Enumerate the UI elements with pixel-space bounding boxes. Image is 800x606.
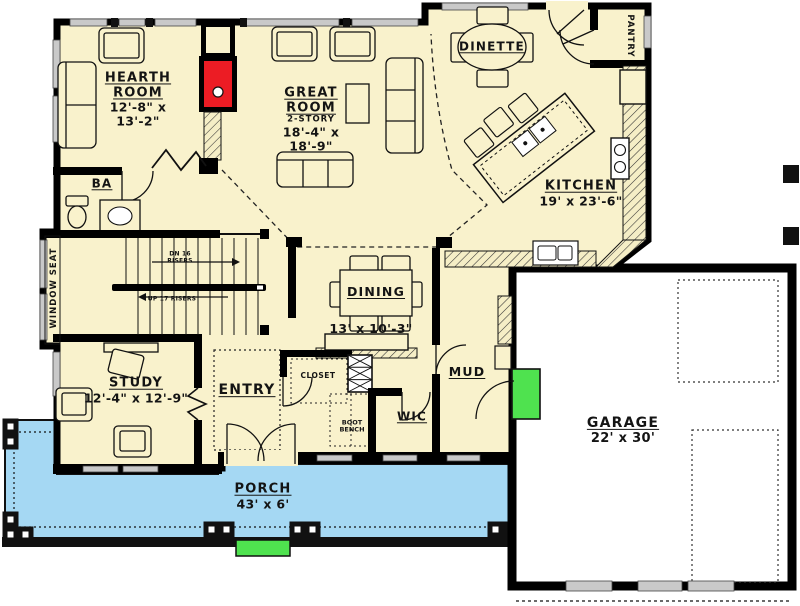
great-room-label: GREAT ROOM 2-STORY 18'-4" x 18'-9" [271, 87, 351, 154]
porch-step-highlight [236, 540, 290, 556]
wic-label: WIC [397, 410, 427, 423]
refrigerator-icon [620, 70, 646, 104]
stair-rail [112, 284, 266, 291]
stairs-down-label: DN 16 RISERS [165, 251, 195, 264]
study-label: STUDY 12'-4" x 12'-9" [84, 377, 189, 406]
mud-bench [495, 296, 512, 369]
stairs-up-label: UP 17 RISERS [148, 297, 196, 304]
floor-plan-page: HEARTH ROOM 12'-8" x 13'-2" GREAT ROOM 2… [0, 0, 800, 606]
hearth-room-label: HEARTH ROOM 12'-8" x 13'-2" [95, 71, 181, 128]
bath-label: BA [92, 177, 113, 190]
entry-label: ENTRY [219, 383, 276, 399]
locker-unit [348, 355, 372, 392]
kitchen-label: KITCHEN 19' x 23'-6" [539, 180, 622, 209]
garage-label: GARAGE 22' x 30' [587, 416, 659, 446]
toilet-icon [66, 196, 88, 206]
porch-label: PORCH 43' x 6' [234, 483, 291, 512]
pantry-label: PANTRY [624, 14, 642, 57]
dining-label: DINING [347, 285, 405, 299]
mud-label: MUD [449, 365, 486, 379]
window-seat-label: WINDOW SEAT [42, 248, 60, 329]
closet-label: CLOSET [300, 372, 335, 380]
dining-dims-label: 13' x 10'-3" [329, 322, 412, 336]
dinette-label: DINETTE [459, 40, 525, 53]
boot-bench-label: BOOT BENCH [336, 420, 368, 435]
garage-door-sills [566, 581, 734, 591]
